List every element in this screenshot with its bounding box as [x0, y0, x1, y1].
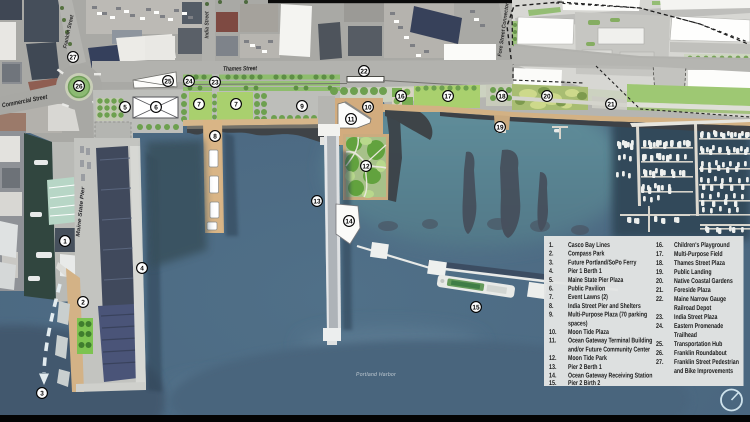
svg-text:1: 1 — [63, 238, 67, 245]
svg-text:23: 23 — [211, 79, 218, 86]
svg-text:Maine State Pier Plaza: Maine State Pier Plaza — [568, 277, 623, 284]
svg-text:6: 6 — [154, 104, 158, 111]
svg-text:Compass Park: Compass Park — [568, 251, 605, 258]
svg-text:11: 11 — [348, 116, 355, 123]
svg-text:7: 7 — [234, 101, 238, 108]
svg-text:Moon Tide Plaza: Moon Tide Plaza — [568, 329, 609, 336]
svg-text:14: 14 — [345, 218, 352, 225]
svg-text:Children's Playground: Children's Playground — [674, 242, 730, 249]
svg-text:10: 10 — [364, 104, 371, 111]
svg-text:Future Portland/SoPo Ferry: Future Portland/SoPo Ferry — [568, 259, 637, 266]
svg-text:Pier 2 Berth 1: Pier 2 Berth 1 — [568, 364, 602, 371]
svg-text:18.: 18. — [656, 260, 664, 267]
svg-text:16: 16 — [397, 93, 404, 100]
svg-text:11.: 11. — [549, 338, 556, 345]
svg-text:13: 13 — [313, 198, 320, 205]
svg-text:22: 22 — [360, 68, 367, 75]
svg-text:6.: 6. — [549, 286, 554, 293]
svg-text:Maine Narrow Gauge: Maine Narrow Gauge — [674, 296, 726, 303]
svg-text:20: 20 — [543, 93, 550, 100]
svg-text:1.: 1. — [549, 242, 554, 249]
svg-text:9.: 9. — [549, 312, 554, 319]
svg-text:25.: 25. — [656, 341, 664, 348]
svg-text:Railroad Depot: Railroad Depot — [674, 305, 712, 312]
svg-text:Foreside Plaza: Foreside Plaza — [674, 287, 711, 294]
svg-text:Public Landing: Public Landing — [674, 269, 712, 276]
svg-text:Trailhead: Trailhead — [674, 332, 697, 339]
svg-text:Public Pavilion: Public Pavilion — [568, 286, 605, 293]
svg-text:12.: 12. — [549, 355, 557, 362]
svg-text:Multi-Purpose Plaza (70 parkin: Multi-Purpose Plaza (70 parking — [568, 312, 647, 319]
svg-text:4.: 4. — [549, 268, 554, 275]
svg-text:26: 26 — [75, 83, 82, 90]
svg-text:27.: 27. — [656, 359, 664, 366]
svg-text:27: 27 — [69, 54, 76, 61]
svg-text:19: 19 — [496, 124, 503, 131]
svg-text:14.: 14. — [549, 373, 557, 380]
svg-text:Event Lawns (2): Event Lawns (2) — [568, 294, 608, 301]
svg-text:24: 24 — [185, 78, 192, 85]
svg-text:2.: 2. — [549, 251, 554, 258]
svg-text:23.: 23. — [656, 314, 664, 321]
svg-text:Franklin Street Pedestrian: Franklin Street Pedestrian — [674, 359, 739, 366]
svg-text:3.: 3. — [549, 259, 554, 266]
svg-text:15: 15 — [472, 304, 479, 311]
svg-text:17.: 17. — [656, 251, 664, 258]
svg-text:21: 21 — [607, 101, 614, 108]
svg-text:17: 17 — [444, 93, 451, 100]
svg-text:spaces): spaces) — [568, 320, 588, 327]
svg-text:20.: 20. — [656, 278, 664, 285]
svg-text:Portland Harbor: Portland Harbor — [356, 371, 397, 378]
svg-text:22.: 22. — [656, 296, 664, 303]
svg-text:Pier 1 Berth 1: Pier 1 Berth 1 — [568, 268, 602, 275]
svg-text:Ocean Gateway Receiving Statio: Ocean Gateway Receiving Station — [568, 373, 652, 380]
svg-text:Thames Street Plaza: Thames Street Plaza — [674, 260, 725, 267]
svg-text:India Street Pier and Shelters: India Street Pier and Shelters — [568, 303, 641, 310]
svg-text:19.: 19. — [656, 269, 664, 276]
svg-text:3: 3 — [40, 390, 44, 397]
svg-text:7: 7 — [197, 101, 201, 108]
svg-text:Transportation Hub: Transportation Hub — [674, 341, 722, 348]
svg-text:Casco Bay Lines: Casco Bay Lines — [568, 242, 610, 249]
svg-text:4: 4 — [140, 265, 144, 272]
svg-text:15.: 15. — [549, 380, 557, 387]
svg-text:Moon Tide Park: Moon Tide Park — [568, 355, 607, 362]
svg-text:India Street: India Street — [204, 10, 211, 38]
svg-text:25: 25 — [164, 78, 171, 85]
svg-text:26.: 26. — [656, 350, 664, 357]
svg-text:10.: 10. — [549, 329, 557, 336]
svg-text:24.: 24. — [656, 323, 664, 330]
svg-text:Multi-Purpose Field: Multi-Purpose Field — [674, 251, 723, 258]
svg-text:21.: 21. — [656, 287, 664, 294]
svg-text:9: 9 — [300, 103, 304, 110]
svg-text:Ocean Gateway Terminal Buildin: Ocean Gateway Terminal Building — [568, 338, 652, 345]
svg-text:Native Coastal Gardens: Native Coastal Gardens — [674, 278, 733, 285]
svg-text:13.: 13. — [549, 364, 557, 371]
svg-text:8.: 8. — [549, 303, 554, 310]
svg-text:2: 2 — [81, 299, 85, 306]
svg-text:India Street Plaza: India Street Plaza — [674, 314, 717, 321]
svg-text:Franklin Roundabout: Franklin Roundabout — [674, 350, 727, 357]
svg-text:Eastern Promenade: Eastern Promenade — [674, 323, 723, 330]
svg-text:Thames Street: Thames Street — [223, 65, 258, 73]
svg-text:5: 5 — [123, 104, 127, 111]
svg-text:and/or Future Community Center: and/or Future Community Center — [568, 346, 650, 353]
svg-text:8: 8 — [213, 133, 217, 140]
svg-text:16.: 16. — [656, 242, 664, 249]
svg-text:12: 12 — [362, 163, 369, 170]
svg-text:5.: 5. — [549, 277, 554, 284]
svg-text:Pier 2 Birth 2: Pier 2 Birth 2 — [568, 380, 600, 387]
svg-text:18: 18 — [498, 93, 505, 100]
svg-text:7.: 7. — [549, 294, 554, 301]
svg-text:and Bike Improvements: and Bike Improvements — [674, 368, 733, 375]
